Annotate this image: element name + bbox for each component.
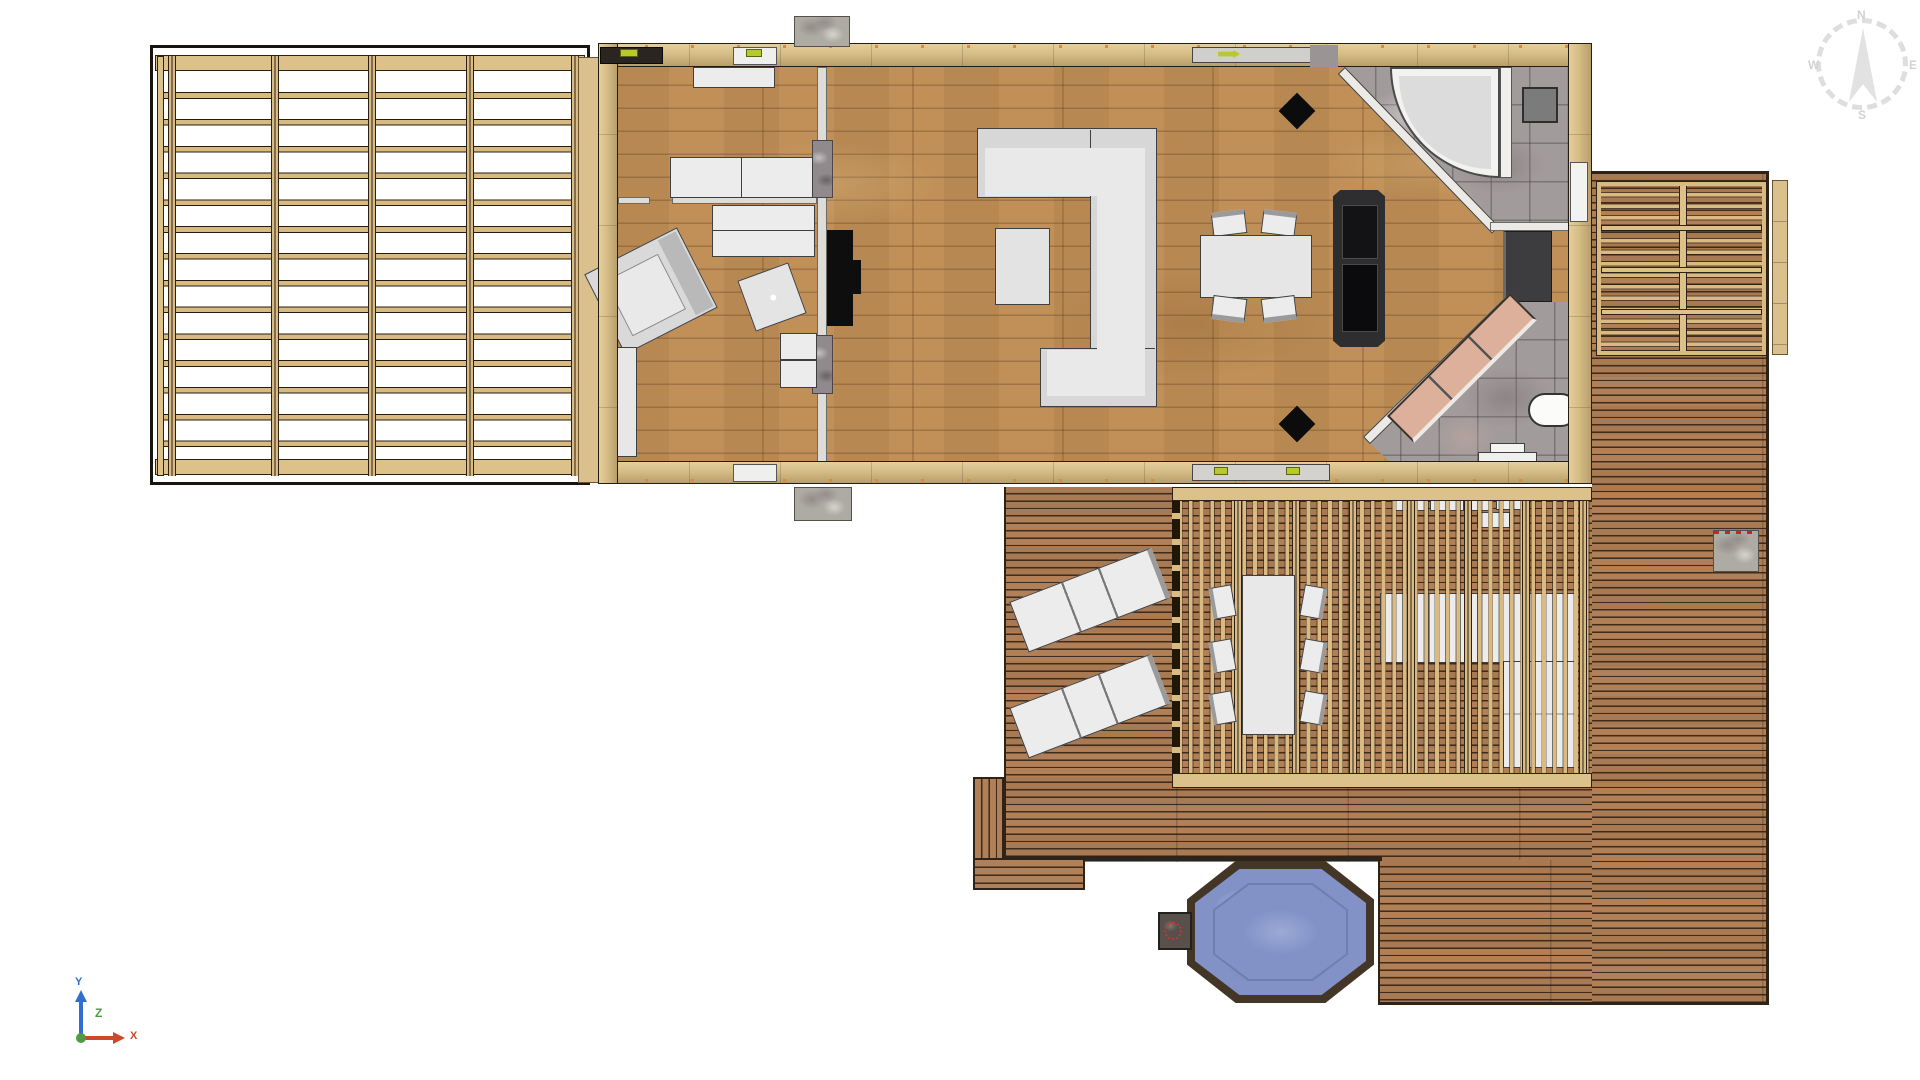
concrete-step-south (794, 487, 852, 521)
x-axis-line (81, 1036, 115, 1040)
compass-south-label: S (1858, 108, 1866, 122)
deck-stair-step[interactable] (973, 858, 1085, 890)
compass-east-label: E (1909, 58, 1917, 72)
island-sink (1342, 264, 1378, 332)
hot-tub-inner-water (1215, 885, 1346, 979)
pergola-post (1579, 487, 1587, 788)
z-axis-label: Z (95, 1006, 102, 1020)
bed-mattress[interactable] (712, 230, 815, 257)
pergola-post (1407, 487, 1415, 788)
table-dot (769, 294, 777, 302)
bed-mattress[interactable] (670, 157, 742, 198)
bedroom-divider-wall (618, 197, 650, 204)
pergola-post (168, 56, 176, 476)
dining-table[interactable] (1200, 235, 1312, 298)
sofa-seat (1047, 350, 1145, 396)
bedroom-divider-wall (672, 197, 817, 204)
trellis-beam (1601, 267, 1762, 273)
hot-tub-pump-box[interactable] (1158, 912, 1192, 950)
coffee-table[interactable] (995, 228, 1050, 305)
floorplan-viewport: N E S W Y Z X (0, 0, 1920, 1080)
pergola-post (1349, 487, 1357, 788)
y-axis-arrow-icon (75, 990, 87, 1002)
hot-tub[interactable] (1187, 861, 1374, 1003)
red-marks (1714, 531, 1758, 534)
shower-panel (1500, 67, 1512, 178)
compass-west-label: W (1808, 58, 1819, 72)
pump-valve (1164, 922, 1182, 940)
bathroom-heater[interactable] (1503, 231, 1552, 302)
nightstand[interactable] (780, 360, 817, 388)
house-wall-west (598, 43, 618, 484)
tile-niche (1310, 45, 1338, 67)
privacy-screen (1772, 180, 1788, 355)
washing-machine[interactable] (1522, 87, 1558, 123)
cooktop (1342, 205, 1378, 259)
pergola-post (271, 56, 279, 476)
pergola-header-top (1172, 487, 1592, 501)
bed-mattress[interactable] (741, 157, 813, 198)
y-axis-label: Y (75, 976, 82, 988)
kitchen-island[interactable] (1333, 190, 1385, 347)
pergola-post (1234, 487, 1242, 788)
wall-shelf[interactable] (693, 67, 775, 88)
deck-south-extension[interactable] (1378, 860, 1592, 1005)
concrete-pad-grill (1713, 530, 1759, 572)
axis-gizmo[interactable]: Y Z X (50, 980, 160, 1060)
x-axis-label: X (130, 1030, 137, 1042)
sliding-door-south[interactable] (1192, 464, 1330, 481)
door-marker (1214, 467, 1228, 475)
side-deck-trellis (1597, 182, 1766, 355)
pergola-post (1522, 487, 1530, 788)
pergola-header-bottom (1172, 773, 1592, 788)
door-south[interactable] (733, 464, 777, 482)
living-divider-wall (817, 67, 827, 462)
door-marker (1286, 467, 1300, 475)
trellis-beam (1601, 225, 1762, 231)
bathroom-wall (1490, 222, 1570, 231)
pergola-edge-left (157, 56, 164, 476)
pergola-post (1464, 487, 1472, 788)
dining-chair[interactable] (1211, 295, 1248, 323)
pergola-carport[interactable] (150, 45, 590, 485)
window-north-2[interactable] (1192, 47, 1323, 63)
bed-mattress[interactable] (712, 205, 815, 231)
pergola-edge-beam (1172, 487, 1180, 788)
door-marker (746, 49, 762, 57)
hot-tub-water (1195, 869, 1366, 995)
nightstand[interactable] (780, 333, 817, 360)
dining-chair[interactable] (1261, 209, 1298, 237)
pergola-dining-roof (1172, 487, 1592, 788)
compass-north-label: N (1857, 8, 1866, 22)
wood-stove[interactable] (827, 230, 853, 326)
wood-stove-flue (853, 260, 861, 294)
pergola-post (368, 56, 376, 476)
trellis-beam (1601, 309, 1762, 315)
stone-cladding (812, 140, 833, 198)
dining-chair[interactable] (1261, 295, 1298, 323)
compass-widget[interactable]: N E S W (1808, 8, 1918, 120)
x-axis-arrow-icon (113, 1032, 125, 1044)
deck-stair-step[interactable] (973, 777, 1004, 860)
door-marker (620, 49, 638, 57)
dining-chair[interactable] (1211, 209, 1248, 237)
house-wall-east (1568, 43, 1592, 484)
origin-dot (76, 1033, 86, 1043)
outdoor-dining-table[interactable] (1242, 575, 1295, 735)
door-east[interactable] (1570, 162, 1588, 222)
pergola-post (466, 56, 474, 476)
concrete-step-north (794, 16, 850, 47)
